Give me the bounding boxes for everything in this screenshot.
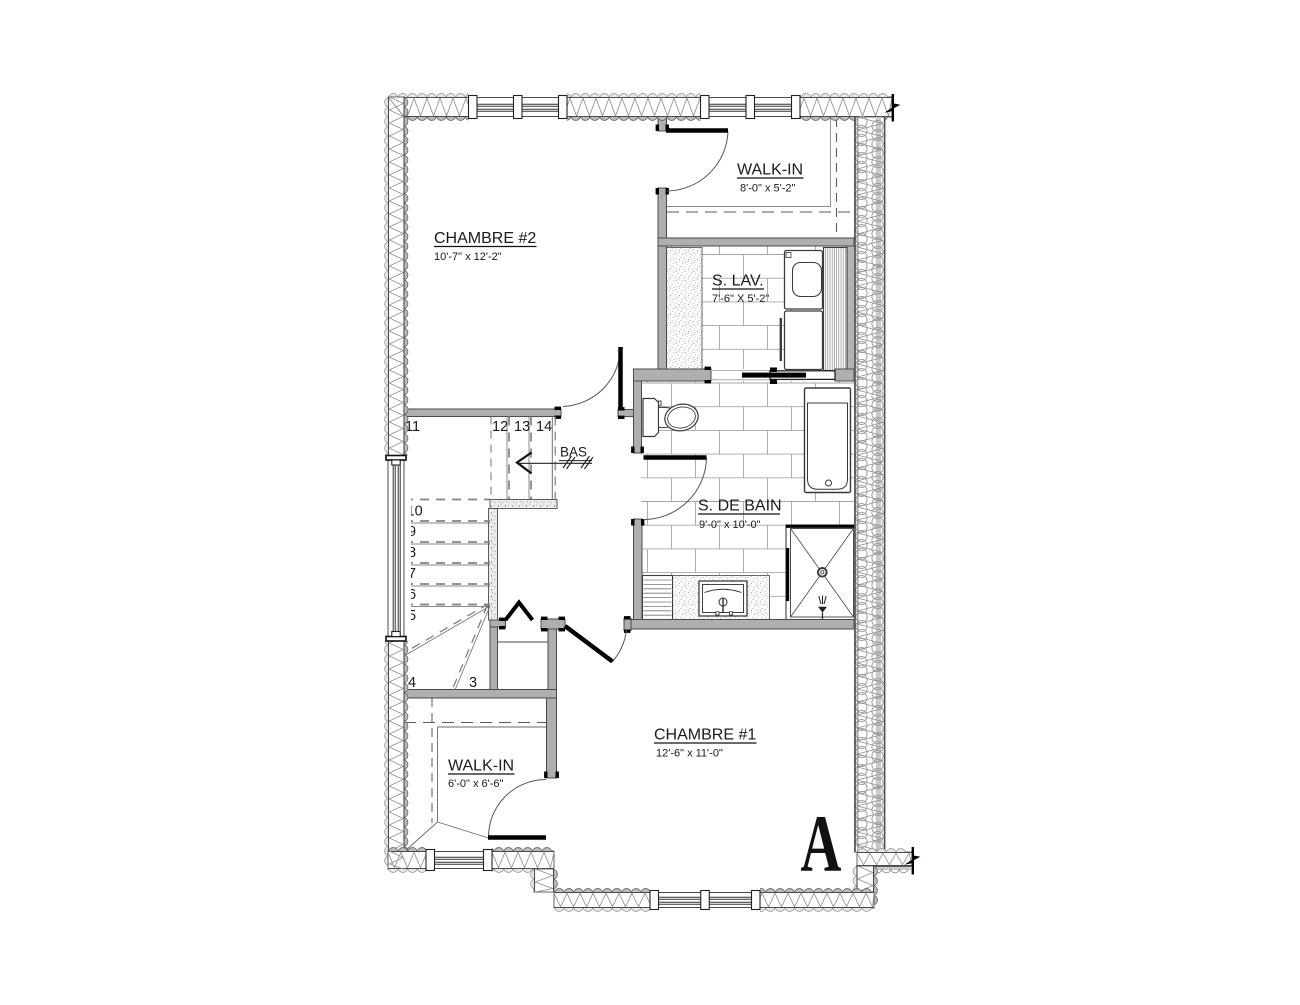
svg-text:WALK-IN: WALK-IN [448, 758, 514, 775]
svg-text:13: 13 [514, 419, 530, 435]
svg-text:BAS: BAS [560, 445, 587, 460]
svg-text:12: 12 [492, 419, 508, 435]
svg-text:S. DE BAIN: S. DE BAIN [698, 498, 782, 515]
svg-text:9'-0" x 10'-0": 9'-0" x 10'-0" [699, 519, 761, 531]
svg-text:14: 14 [536, 419, 552, 435]
svg-text:3: 3 [469, 675, 477, 691]
svg-text:A: A [801, 799, 842, 890]
svg-text:7'-6" X 5'-2": 7'-6" X 5'-2" [712, 293, 769, 305]
svg-text:CHAMBRE #1: CHAMBRE #1 [654, 727, 756, 744]
svg-text:S. LAV.: S. LAV. [712, 273, 764, 290]
svg-text:10'-7" x 12'-2": 10'-7" x 12'-2" [434, 251, 502, 263]
svg-text:6'-0" x 6'-6": 6'-0" x 6'-6" [448, 778, 504, 790]
svg-text:WALK-IN: WALK-IN [737, 162, 803, 179]
svg-text:8'-0" x 5'-2": 8'-0" x 5'-2" [740, 183, 796, 195]
svg-text:4: 4 [408, 675, 416, 691]
svg-text:CHAMBRE #2: CHAMBRE #2 [434, 230, 536, 247]
svg-text:12'-6" x 11'-0": 12'-6" x 11'-0" [656, 748, 723, 760]
